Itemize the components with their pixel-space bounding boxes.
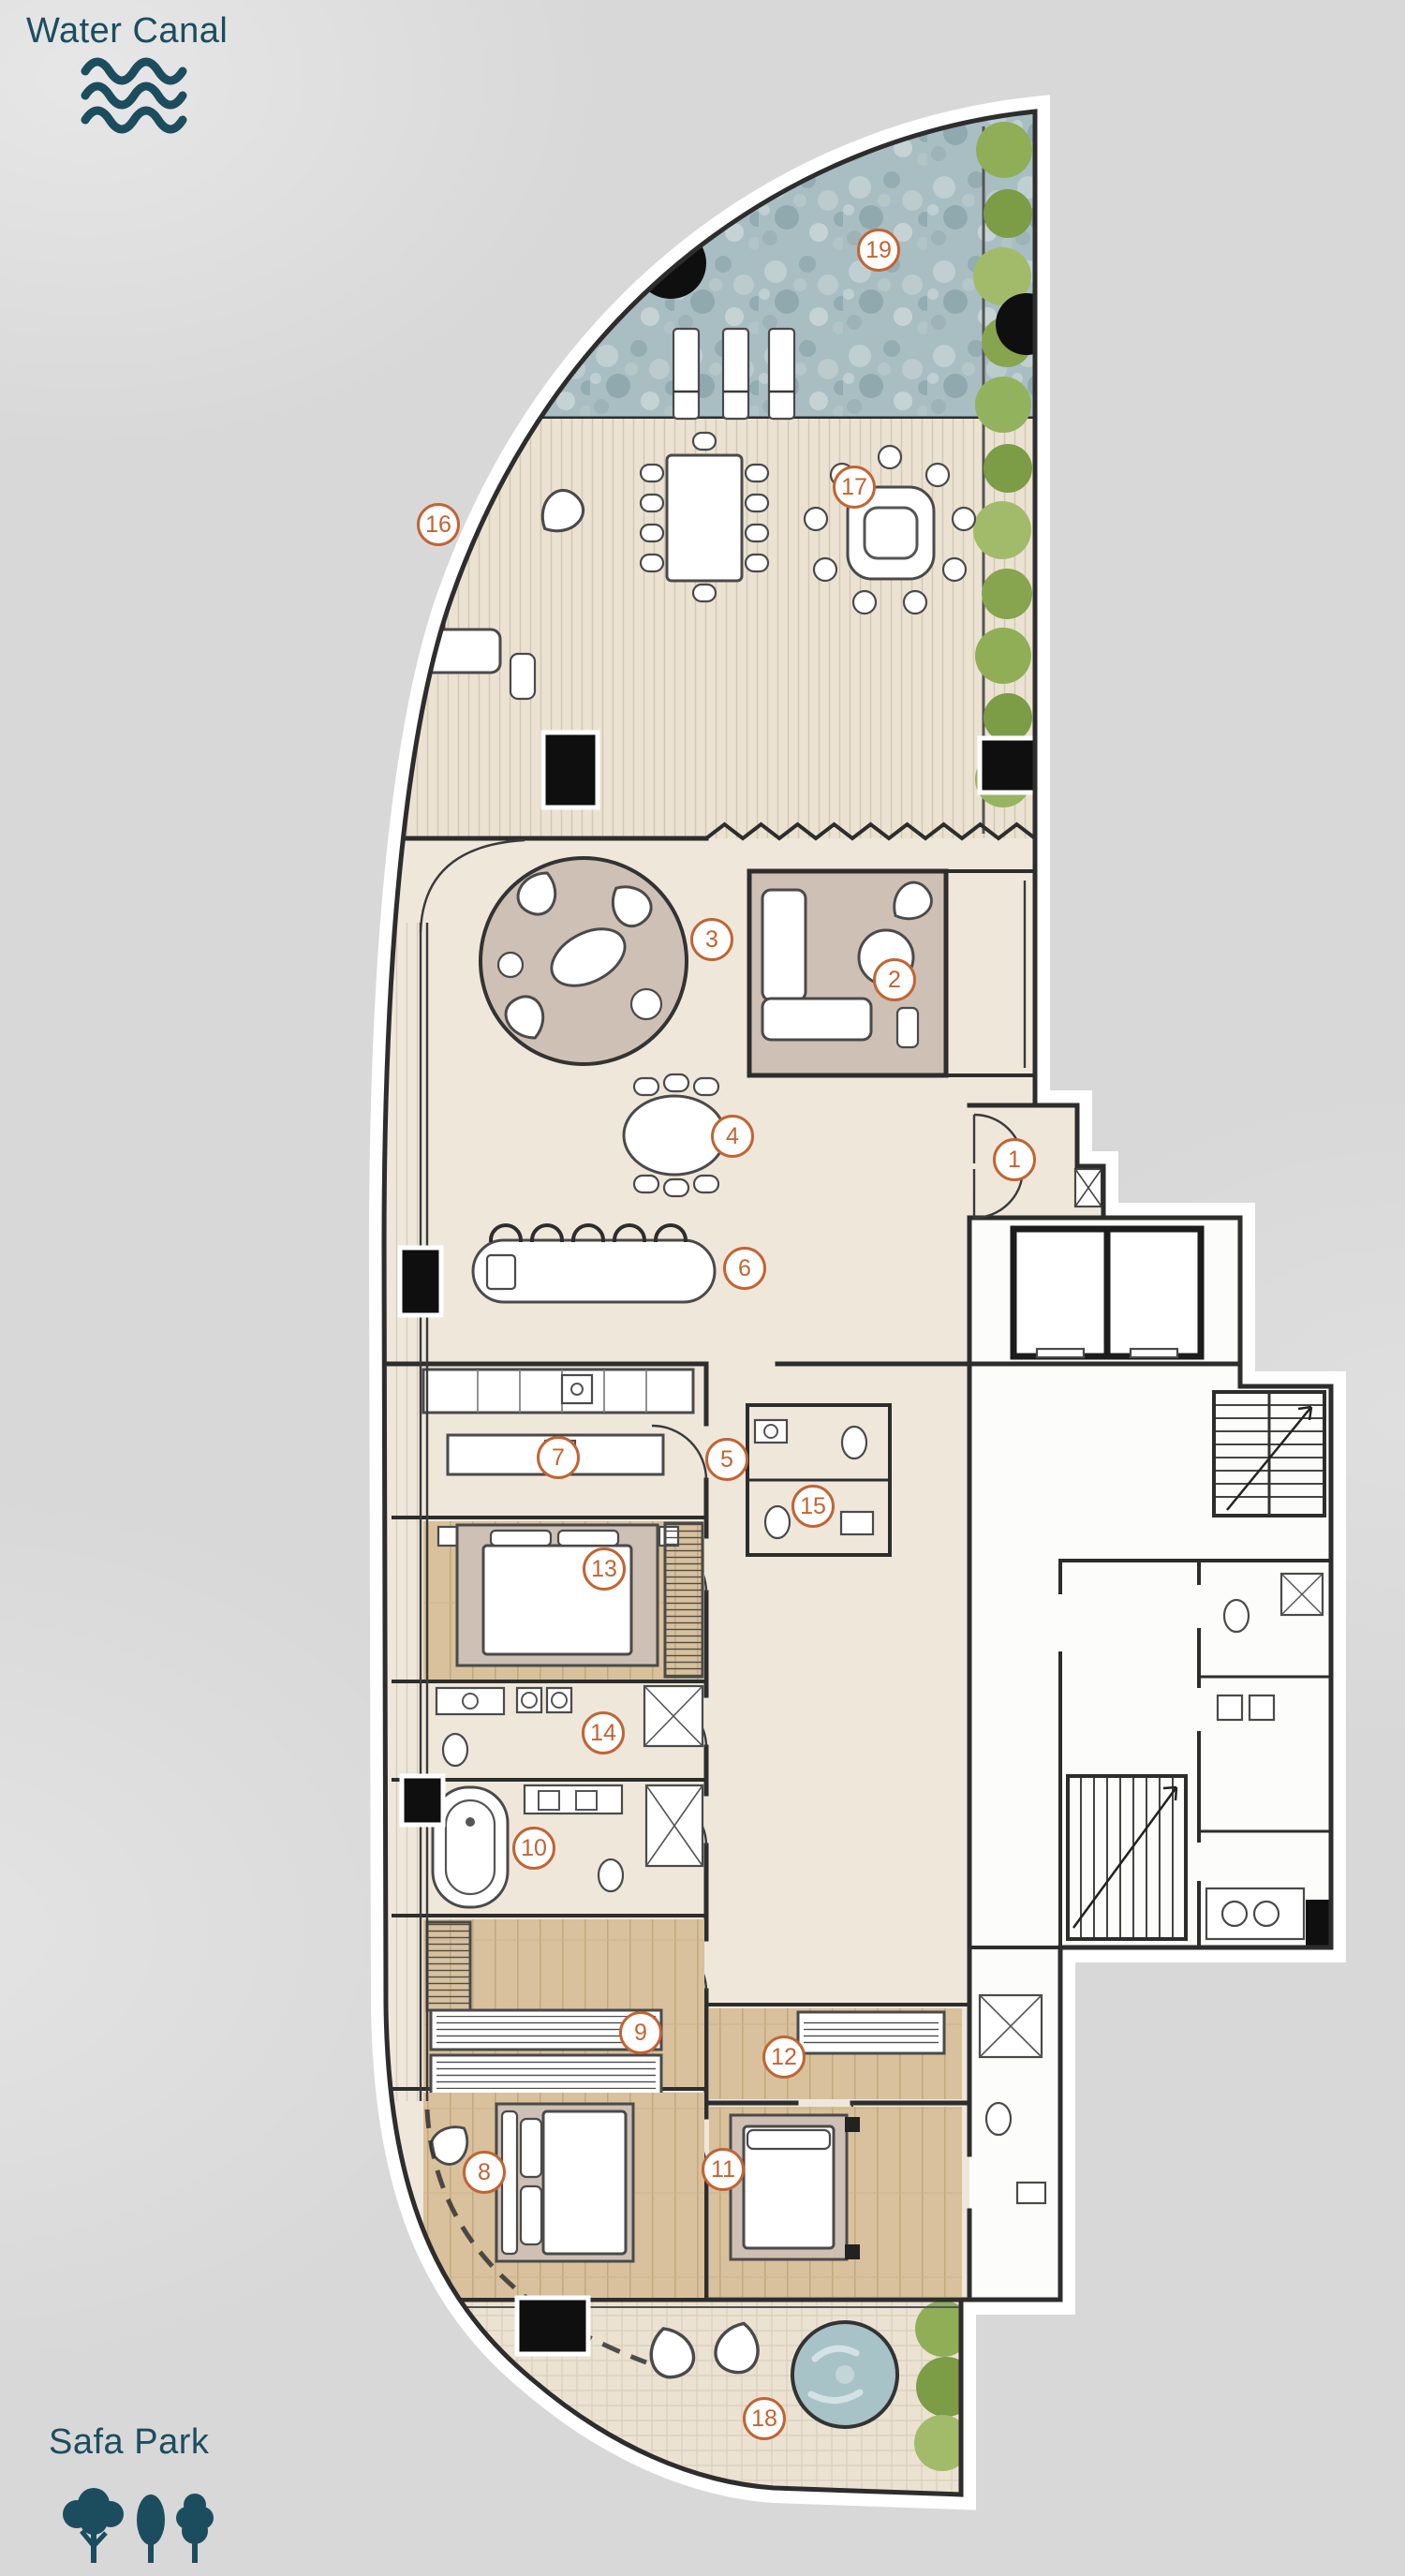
bedroom-2 xyxy=(709,2107,962,2297)
sun-loungers xyxy=(673,329,794,419)
pool-area xyxy=(375,94,1040,419)
floorplan-page: Water Canal Safa Park xyxy=(0,0,1405,2576)
column xyxy=(517,2298,588,2354)
column xyxy=(402,1776,443,1825)
elevators xyxy=(1013,1229,1201,1357)
floor-plan xyxy=(0,0,1405,2576)
column xyxy=(543,733,598,807)
column xyxy=(400,1248,441,1315)
walk-in-closet xyxy=(423,1919,704,2095)
dressing-room xyxy=(709,2008,962,2099)
sunken-lounge xyxy=(481,858,687,1064)
powder-room xyxy=(747,1405,890,1555)
bedroom-3 xyxy=(423,1521,704,1680)
column xyxy=(980,738,1036,792)
